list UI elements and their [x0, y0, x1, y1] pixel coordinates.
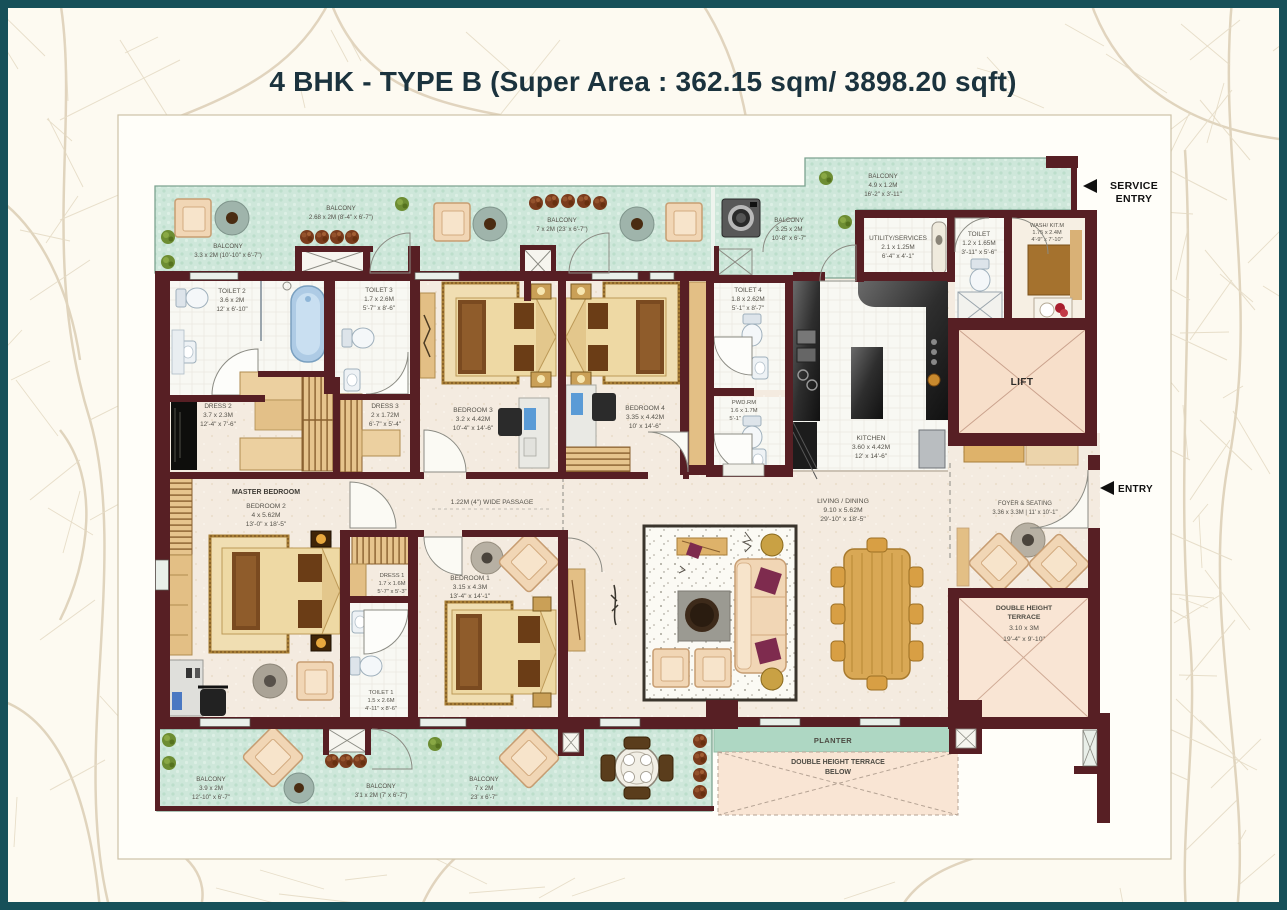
- svg-text:3.9 x 2M: 3.9 x 2M: [199, 785, 223, 792]
- svg-text:3.6 x 2M: 3.6 x 2M: [220, 297, 245, 304]
- svg-text:TERRACE: TERRACE: [1008, 614, 1041, 621]
- svg-text:19'-4" x 9'-10": 19'-4" x 9'-10": [1003, 636, 1045, 643]
- svg-text:3.3 x 2M (10'-10" x 6'-7"): 3.3 x 2M (10'-10" x 6'-7"): [194, 252, 262, 259]
- svg-text:TOILET 4: TOILET 4: [734, 287, 762, 294]
- svg-text:TOILET 2: TOILET 2: [218, 288, 246, 295]
- svg-text:MASTER BEDROOM: MASTER BEDROOM: [232, 489, 300, 496]
- svg-text:BALCONY: BALCONY: [326, 205, 356, 212]
- svg-text:DRESS 3: DRESS 3: [371, 403, 399, 410]
- svg-text:KITCHEN: KITCHEN: [857, 435, 886, 442]
- svg-text:6'-7" x 5'-4": 6'-7" x 5'-4": [369, 421, 401, 428]
- svg-text:ENTRY: ENTRY: [1118, 484, 1153, 495]
- svg-text:BALCONY: BALCONY: [547, 217, 577, 224]
- svg-text:ENTRY: ENTRY: [1116, 193, 1153, 205]
- svg-text:3.2 x 4.42M: 3.2 x 4.42M: [456, 416, 490, 423]
- svg-text:13'-0" x 18'-5": 13'-0" x 18'-5": [246, 521, 287, 528]
- svg-text:13'-4" x 14'-1": 13'-4" x 14'-1": [450, 593, 491, 600]
- svg-text:3.7 x 2.3M: 3.7 x 2.3M: [203, 412, 233, 419]
- svg-text:BALCONY: BALCONY: [469, 776, 499, 783]
- svg-text:BEDROOM 2: BEDROOM 2: [246, 503, 286, 510]
- svg-text:10'-4" x 14'-6": 10'-4" x 14'-6": [453, 425, 494, 432]
- svg-text:UTILITY/SERVICES: UTILITY/SERVICES: [869, 235, 927, 242]
- svg-text:BEDROOM 3: BEDROOM 3: [453, 407, 493, 414]
- svg-text:1.6 x 1.7M: 1.6 x 1.7M: [730, 408, 757, 414]
- svg-text:16'-2" x 3'-11": 16'-2" x 3'-11": [864, 191, 902, 198]
- svg-text:FOYER & SEATING: FOYER & SEATING: [998, 501, 1052, 507]
- svg-text:BELOW: BELOW: [825, 769, 851, 776]
- svg-text:3.15 x 4.3M: 3.15 x 4.3M: [453, 584, 487, 591]
- svg-text:1.22M (4") WIDE PASSAGE: 1.22M (4") WIDE PASSAGE: [451, 499, 534, 506]
- svg-text:4 BHK - TYPE B (Super Area : 3: 4 BHK - TYPE B (Super Area : 362.15 sqm/…: [269, 66, 1016, 97]
- svg-text:7 x 2M: 7 x 2M: [475, 785, 494, 792]
- svg-text:PLANTER: PLANTER: [814, 736, 852, 745]
- svg-text:1.8 x 2.62M: 1.8 x 2.62M: [731, 296, 764, 303]
- svg-text:3'-11" x 5'-6": 3'-11" x 5'-6": [961, 249, 996, 256]
- svg-text:1.75 x 2.4M: 1.75 x 2.4M: [1032, 230, 1062, 236]
- svg-text:7 x 2M (23' x 6'-7"): 7 x 2M (23' x 6'-7"): [536, 226, 587, 233]
- svg-text:DOUBLE HEIGHT TERRACE: DOUBLE HEIGHT TERRACE: [791, 759, 885, 766]
- svg-text:3.10 x 3M: 3.10 x 3M: [1009, 625, 1039, 632]
- svg-text:3.36 x 3.3M | 11' x 10'-1": 3.36 x 3.3M | 11' x 10'-1": [992, 510, 1057, 516]
- svg-text:DRESS 1: DRESS 1: [380, 573, 405, 579]
- svg-text:2 x 1.72M: 2 x 1.72M: [371, 412, 399, 419]
- svg-text:BALCONY: BALCONY: [213, 243, 243, 250]
- svg-text:29'-10" x 18'-5": 29'-10" x 18'-5": [820, 516, 866, 523]
- svg-text:BEDROOM 4: BEDROOM 4: [625, 405, 665, 412]
- svg-text:3.60 x 4.42M: 3.60 x 4.42M: [852, 444, 890, 451]
- svg-text:12'-4" x 7'-6": 12'-4" x 7'-6": [200, 421, 236, 428]
- svg-text:6'-4" x 4'-1": 6'-4" x 4'-1": [882, 253, 914, 260]
- svg-text:LIFT: LIFT: [1011, 377, 1034, 388]
- svg-text:BALCONY: BALCONY: [196, 776, 226, 783]
- svg-text:1.7 x 1.6M: 1.7 x 1.6M: [378, 581, 405, 587]
- svg-text:PWD.RM: PWD.RM: [732, 400, 756, 406]
- svg-text:5'-1" x 8'-7": 5'-1" x 8'-7": [732, 305, 764, 312]
- svg-text:DRESS 2: DRESS 2: [204, 403, 232, 410]
- svg-text:12'-10" x 6'-7": 12'-10" x 6'-7": [192, 794, 230, 801]
- svg-text:BALCONY: BALCONY: [366, 783, 396, 790]
- svg-text:1.7 x 2.6M: 1.7 x 2.6M: [364, 296, 394, 303]
- svg-text:2.68 x 2M (8'-4" x 6'-7"): 2.68 x 2M (8'-4" x 6'-7"): [309, 214, 373, 221]
- svg-text:3.35 x 4.42M: 3.35 x 4.42M: [626, 414, 664, 421]
- svg-text:10' x 14'-6": 10' x 14'-6": [629, 423, 662, 430]
- svg-text:SERVICE: SERVICE: [1110, 180, 1158, 192]
- svg-text:BEDROOM 1: BEDROOM 1: [450, 575, 490, 582]
- svg-text:2.1 x 1.25M: 2.1 x 1.25M: [881, 244, 914, 251]
- svg-text:12' x 6'-10": 12' x 6'-10": [216, 306, 247, 313]
- svg-text:5'-7" x 5'-3": 5'-7" x 5'-3": [377, 589, 406, 595]
- svg-text:1.5 x 2.6M: 1.5 x 2.6M: [367, 698, 394, 704]
- svg-text:4.9 x 1.2M: 4.9 x 1.2M: [869, 182, 898, 189]
- svg-text:4'-9" x 7'-10": 4'-9" x 7'-10": [1031, 237, 1062, 243]
- svg-text:9.10 x 5.62M: 9.10 x 5.62M: [823, 507, 863, 514]
- svg-text:3'1 x 2M (7' x 6'-7"): 3'1 x 2M (7' x 6'-7"): [355, 792, 408, 799]
- svg-text:LIVING / DINING: LIVING / DINING: [817, 498, 869, 505]
- svg-text:TOILET 3: TOILET 3: [365, 287, 393, 294]
- svg-text:10'-8" x 6'-7": 10'-8" x 6'-7": [772, 235, 807, 242]
- svg-text:3.25 x 2M: 3.25 x 2M: [775, 226, 802, 233]
- svg-text:DOUBLE HEIGHT: DOUBLE HEIGHT: [996, 605, 1053, 612]
- svg-text:12' x 14'-6": 12' x 14'-6": [855, 453, 888, 460]
- svg-text:1.2 x 1.65M: 1.2 x 1.65M: [962, 240, 995, 247]
- svg-text:4'-11" x 8'-6": 4'-11" x 8'-6": [365, 706, 397, 712]
- svg-text:4 x 5.62M: 4 x 5.62M: [252, 512, 281, 519]
- svg-text:TOILET: TOILET: [968, 231, 990, 238]
- svg-text:5'-7" x 8'-6": 5'-7" x 8'-6": [363, 305, 395, 312]
- svg-text:BALCONY: BALCONY: [868, 173, 898, 180]
- svg-text:TOILET 1: TOILET 1: [369, 690, 394, 696]
- svg-text:23' x 6'-7": 23' x 6'-7": [471, 794, 498, 801]
